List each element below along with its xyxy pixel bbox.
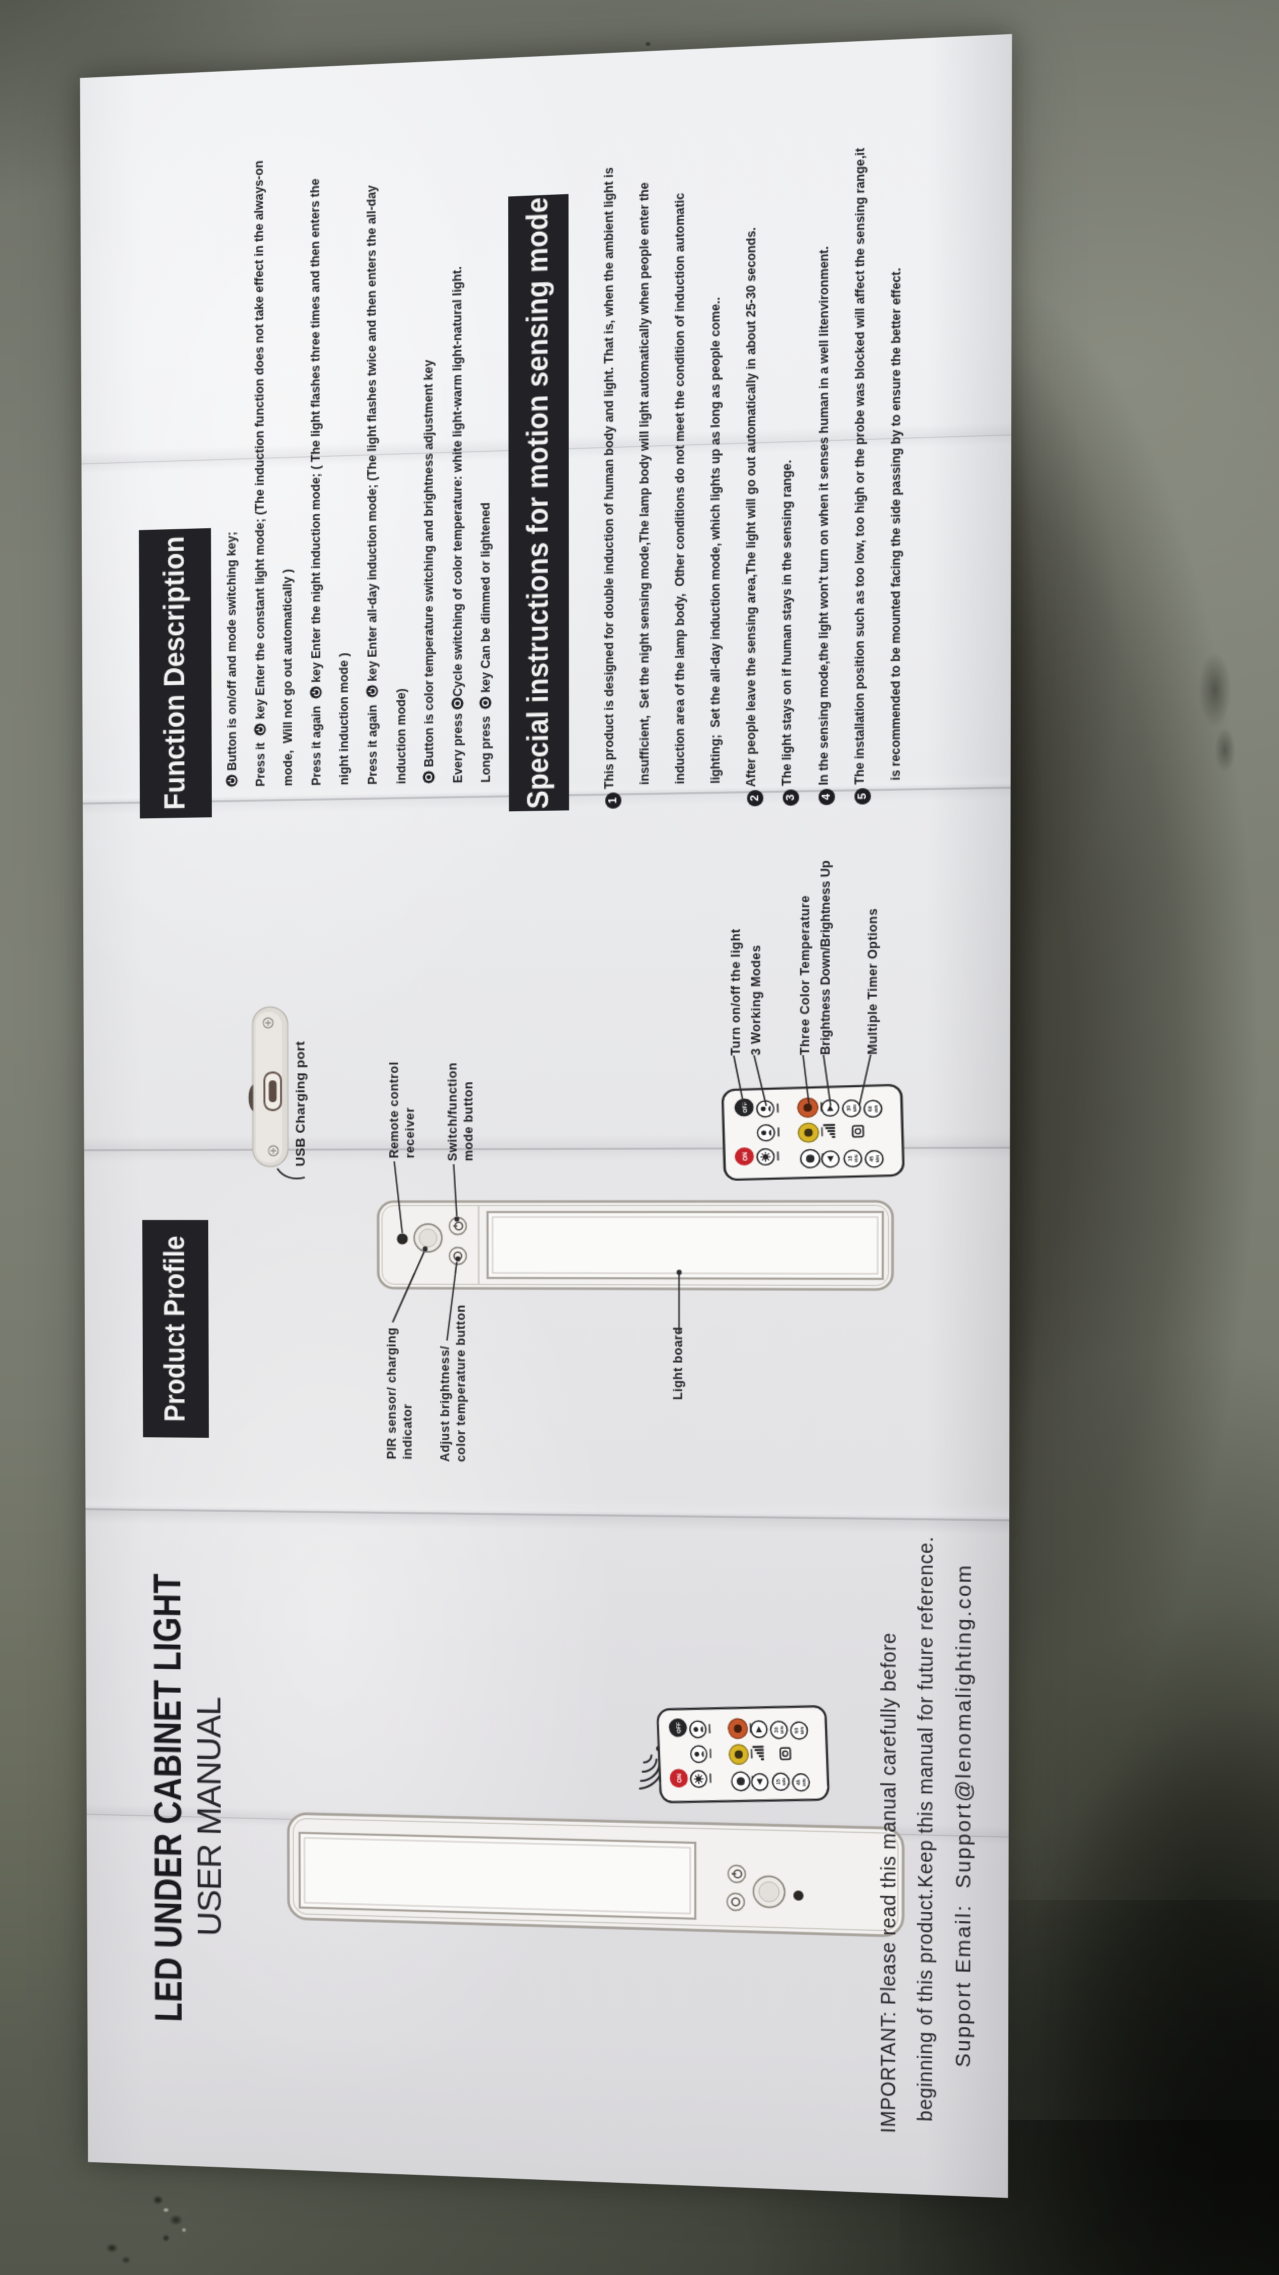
svg-text:MIN: MIN (799, 1726, 804, 1734)
svg-text:MIN: MIN (853, 1155, 859, 1163)
svg-text:OFF: OFF (676, 1721, 683, 1733)
svg-text:MIN: MIN (781, 1778, 786, 1786)
svg-text:ON: ON (677, 1774, 683, 1783)
svg-text:MIN: MIN (779, 1726, 784, 1734)
svg-text:ON: ON (743, 1152, 750, 1161)
svg-text:MIN: MIN (801, 1778, 806, 1786)
svg-text:MIN: MIN (875, 1155, 881, 1163)
